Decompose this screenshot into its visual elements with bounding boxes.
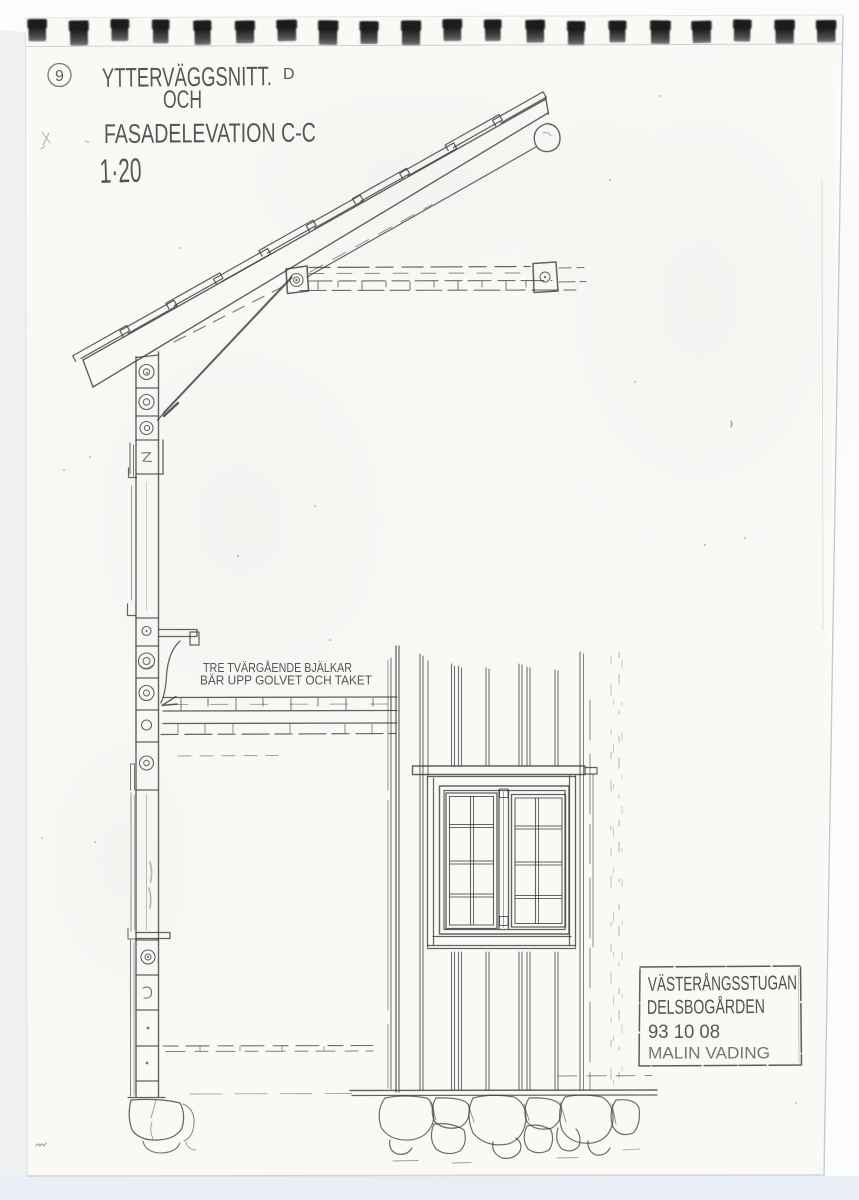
- svg-text:D: D: [283, 66, 295, 83]
- svg-text:1·20: 1·20: [99, 152, 142, 191]
- svg-text:93 10 08: 93 10 08: [648, 1022, 720, 1043]
- svg-text:VÄSTERÅNGSSTUGAN: VÄSTERÅNGSSTUGAN: [648, 971, 797, 996]
- svg-text:BÄR UPP GOLVET OCH TAKET: BÄR UPP GOLVET OCH TAKET: [200, 674, 372, 688]
- svg-text:9: 9: [55, 68, 64, 85]
- svg-text:OCH: OCH: [163, 86, 202, 114]
- svg-text:MALIN VADING: MALIN VADING: [648, 1045, 770, 1063]
- svg-text:DELSBOGÅRDEN: DELSBOGÅRDEN: [647, 995, 765, 1019]
- svg-text:FASADELEVATION C-C: FASADELEVATION C-C: [104, 118, 316, 149]
